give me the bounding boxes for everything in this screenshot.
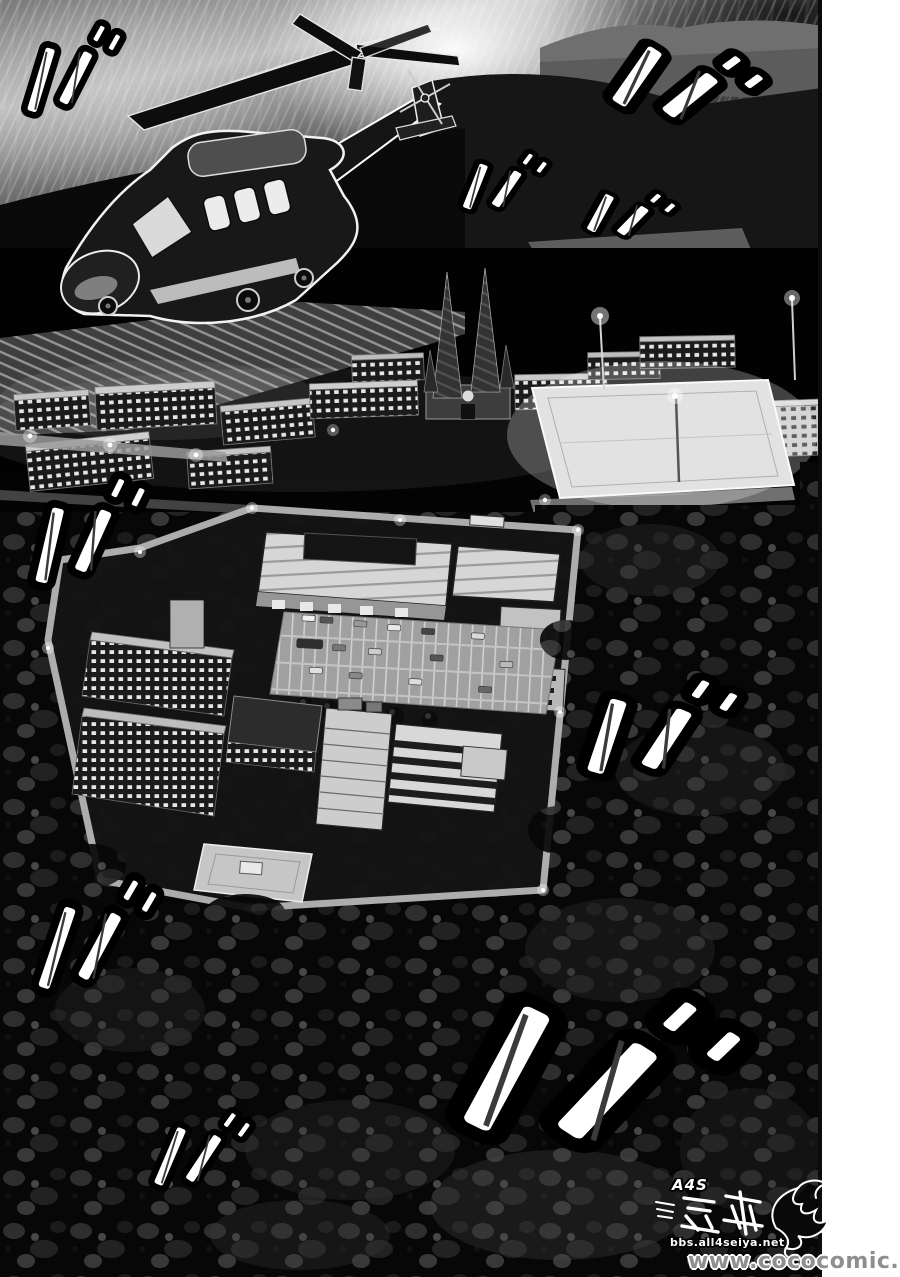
manga-page: A4S bbs.all4seiya.net www.cococomic.com [0, 0, 900, 1277]
logo-title-cjk [682, 1192, 762, 1234]
page-margin [818, 0, 900, 1277]
logo-group-name: A4S [672, 1176, 708, 1194]
research-facility [42, 502, 584, 914]
logo-site-url: bbs.all4seiya.net [670, 1236, 785, 1249]
watermark: www.cococomic.com [688, 1249, 900, 1274]
logo-subtitle-cjk [656, 1202, 674, 1218]
aerial-scene [0, 0, 822, 1277]
